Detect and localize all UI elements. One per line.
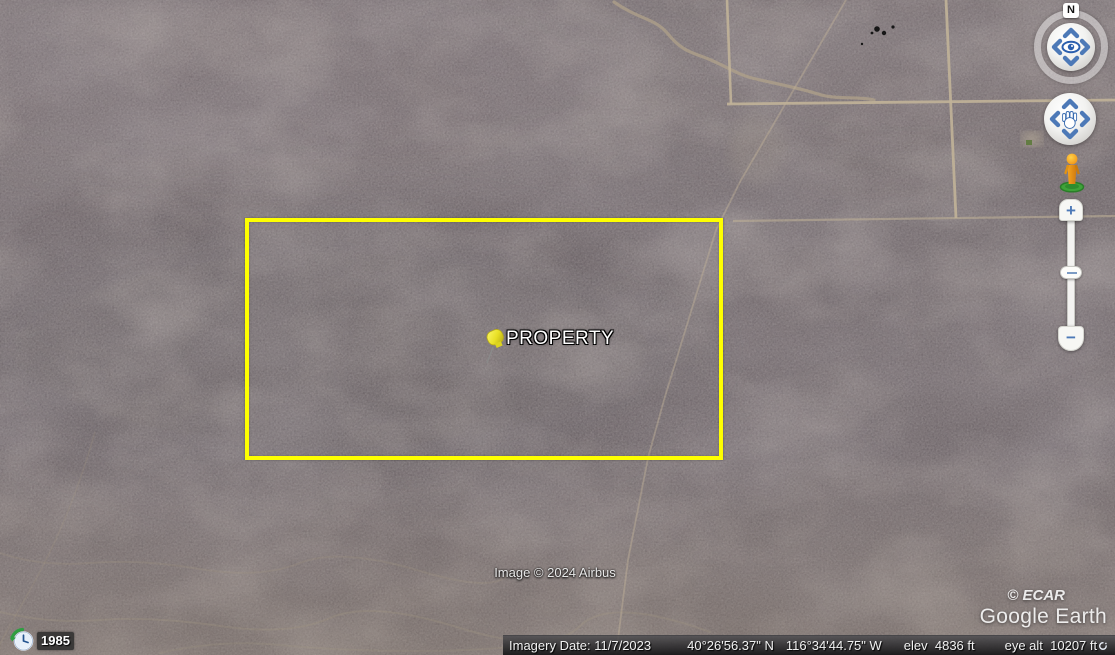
north-indicator[interactable]: N (1063, 3, 1079, 18)
imagery-attribution: Image © 2024 Airbus (440, 565, 670, 580)
street-view-pegman[interactable] (1057, 150, 1087, 194)
zoom-in-button[interactable]: + (1059, 199, 1083, 221)
look-left-arrow[interactable] (1054, 41, 1060, 53)
eye-altitude: eye alt 10207 ft (1005, 638, 1098, 653)
eye-icon (1063, 42, 1080, 52)
watermark-copyright: © ECAR (980, 587, 1065, 604)
imagery-date: Imagery Date: 11/7/2023 (509, 638, 651, 653)
move-ball[interactable] (1044, 93, 1096, 145)
latitude: 40°26'56.37" N (687, 638, 774, 653)
pegman-icon (1057, 150, 1087, 194)
look-ball[interactable] (1047, 23, 1095, 71)
pan-hand-icon (1063, 112, 1077, 129)
clock-icon (10, 628, 35, 653)
property-pin-label[interactable]: PROPERTY (506, 328, 614, 350)
pan-down-arrow[interactable] (1064, 131, 1076, 137)
streaming-progress-icon (1097, 636, 1109, 655)
look-right-arrow[interactable] (1082, 41, 1088, 53)
look-arrows (1047, 23, 1095, 71)
look-up-arrow[interactable] (1065, 30, 1077, 36)
google-earth-viewport: PROPERTY Image © 2024 Airbus © ECAR Goog… (0, 0, 1115, 655)
look-joystick[interactable]: N (1031, 7, 1111, 87)
pan-right-arrow[interactable] (1082, 113, 1088, 125)
watermark: © ECAR Google Earth (980, 587, 1107, 629)
pan-up-arrow[interactable] (1064, 101, 1076, 107)
historical-imagery-button[interactable] (10, 628, 35, 653)
zoom-slider[interactable]: + − (1057, 199, 1085, 351)
status-bar: Imagery Date: 11/7/2023 40°26'56.37" N 1… (503, 635, 1115, 655)
pan-left-arrow[interactable] (1052, 113, 1058, 125)
historical-imagery-year: 1985 (37, 632, 74, 650)
look-down-arrow[interactable] (1065, 58, 1077, 64)
google-earth-logo: Google Earth (980, 605, 1107, 629)
move-arrows (1044, 93, 1096, 145)
move-joystick[interactable] (1044, 93, 1096, 145)
zoom-slider-handle[interactable] (1060, 266, 1082, 279)
longitude: 116°34'44.75" W (786, 638, 882, 653)
zoom-out-button[interactable]: − (1058, 326, 1084, 351)
elevation: elev 4836 ft (904, 638, 975, 653)
